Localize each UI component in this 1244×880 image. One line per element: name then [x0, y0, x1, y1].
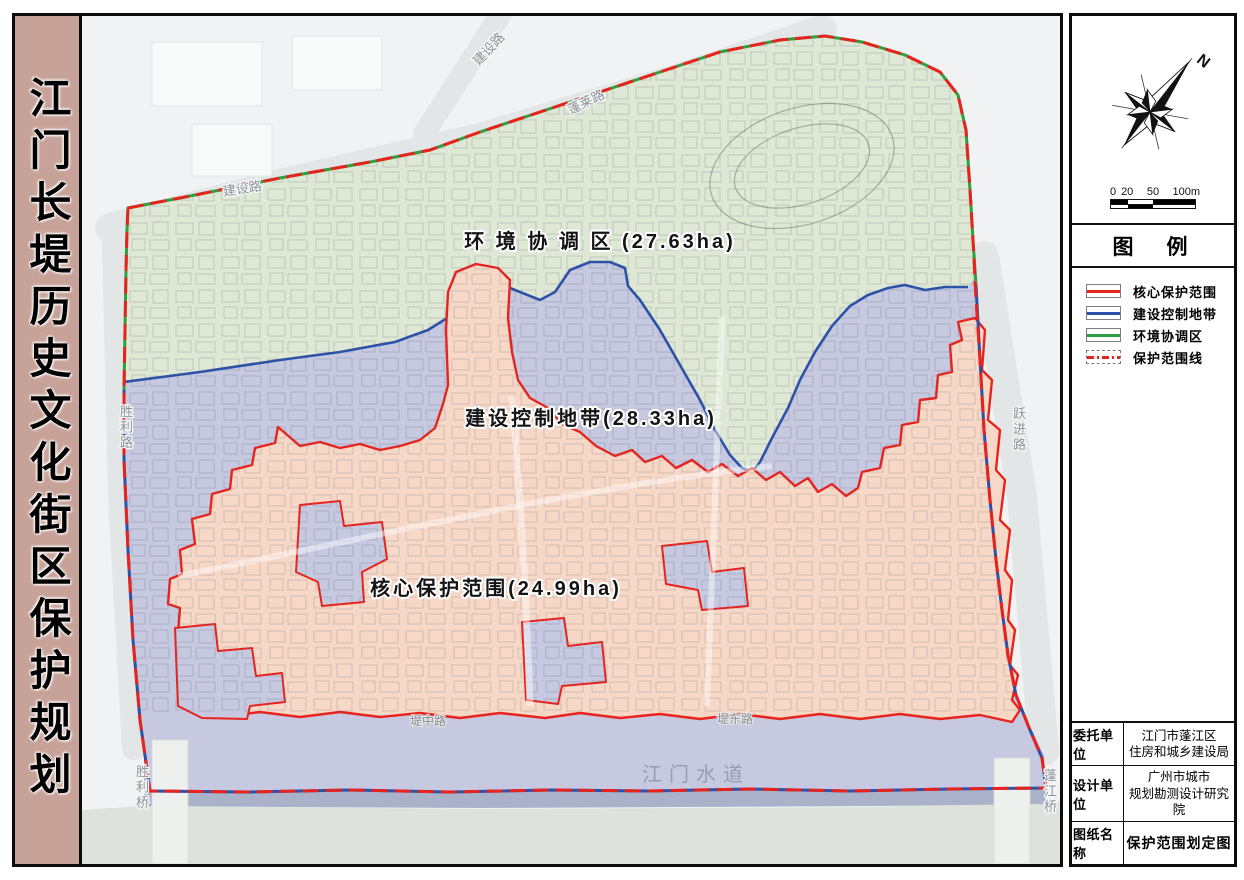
legend-label: 核心保护范围 [1133, 282, 1217, 301]
info-table: 委托单位 江门市蓬江区 住房和城乡建设局 设计单位 广州市城市 规划勘测设计研究… [1072, 721, 1234, 864]
table-row-designer: 设计单位 广州市城市 规划勘测设计研究院 [1072, 765, 1234, 821]
map-svg: 环 境 协 调 区 (27.63ha) 建设控制地带(28.33ha) 核心保护… [82, 16, 1060, 864]
row-label: 图纸名称 [1072, 822, 1124, 864]
vertical-title-bar: 江门长堤历史文化街区保护规划 [15, 16, 82, 864]
plan-sheet: 江门长堤历史文化街区保护规划 [0, 0, 1244, 880]
map-frame: 江门长堤历史文化街区保护规划 [12, 13, 1063, 867]
row-label: 委托单位 [1072, 723, 1124, 765]
far-bank [82, 799, 1060, 864]
sheet-title: 江门长堤历史文化街区保护规划 [26, 76, 68, 804]
scale-tick-100: 100m [1172, 186, 1200, 198]
label-jiangmen-waterway: 江门水道 [642, 763, 750, 786]
coordination-line-symbol [1086, 328, 1121, 342]
value-line: 保护范围划定图 [1127, 834, 1232, 852]
scale-tick-20: 20 [1121, 186, 1133, 198]
label-shengli-bridge: 胜利桥 [136, 764, 149, 810]
map-area: 环 境 协 调 区 (27.63ha) 建设控制地带(28.33ha) 核心保护… [82, 16, 1060, 864]
legend-item-boundary: 保护范围线 [1086, 346, 1234, 368]
label-shengli-road: 胜利路 [120, 404, 133, 450]
row-value: 江门市蓬江区 住房和城乡建设局 [1124, 723, 1234, 765]
core-line-symbol [1086, 284, 1121, 298]
label-control-zone: 建设控制地带(28.33ha) [465, 406, 717, 430]
legend-label: 环境协调区 [1133, 326, 1203, 345]
label-yuejin-road: 跃进路 [1013, 406, 1026, 452]
label-core-zone: 核心保护范围(24.99ha) [370, 576, 622, 600]
legend-item-core: 核心保护范围 [1086, 280, 1234, 302]
scale-ticks: 0 20 50 100m [1110, 186, 1196, 199]
value-line: 住房和城乡建设局 [1129, 744, 1229, 760]
scale-tick-50: 50 [1147, 186, 1159, 198]
control-line-symbol [1086, 306, 1121, 320]
table-row-drawing-name: 图纸名称 保护范围划定图 [1072, 821, 1234, 864]
value-line: 江门市蓬江区 [1141, 728, 1216, 744]
scale-bar-row-bottom [1111, 204, 1195, 208]
legend-item-coordination: 环境协调区 [1086, 324, 1234, 346]
legend-label: 保护范围线 [1133, 348, 1203, 367]
row-value: 广州市城市 规划勘测设计研究院 [1124, 766, 1234, 821]
scale-bar-graphic [1110, 199, 1196, 209]
label-dizhong-road: 堤中路 [410, 713, 446, 728]
compass-rose: N [1078, 20, 1228, 180]
label-coordination-zone: 环 境 协 调 区 (27.63ha) [464, 229, 736, 253]
legend-title: 图 例 [1072, 223, 1234, 268]
label-pengjiang-bridge: 蓬江桥 [1044, 768, 1057, 814]
legend: 核心保护范围 建设控制地带 环境协调区 保护范围线 [1072, 268, 1234, 378]
boundary-line-symbol [1086, 350, 1121, 364]
legend-item-control: 建设控制地带 [1086, 302, 1234, 324]
row-value: 保护范围划定图 [1124, 822, 1234, 864]
scale-bar: 0 20 50 100m [1110, 186, 1196, 209]
compass-box: N [1072, 16, 1234, 184]
label-didong-road: 堤东路 [717, 711, 753, 726]
legend-label: 建设控制地带 [1133, 304, 1217, 323]
table-row-client: 委托单位 江门市蓬江区 住房和城乡建设局 [1072, 723, 1234, 765]
row-label: 设计单位 [1072, 766, 1124, 821]
north-label: N [1193, 51, 1213, 72]
value-line: 规划勘测设计研究院 [1126, 786, 1232, 819]
value-line: 广州市城市 [1148, 769, 1211, 785]
right-panel: N 0 20 50 100m 图 例 核心保护范围 [1069, 13, 1237, 867]
scale-tick-0: 0 [1110, 186, 1116, 198]
